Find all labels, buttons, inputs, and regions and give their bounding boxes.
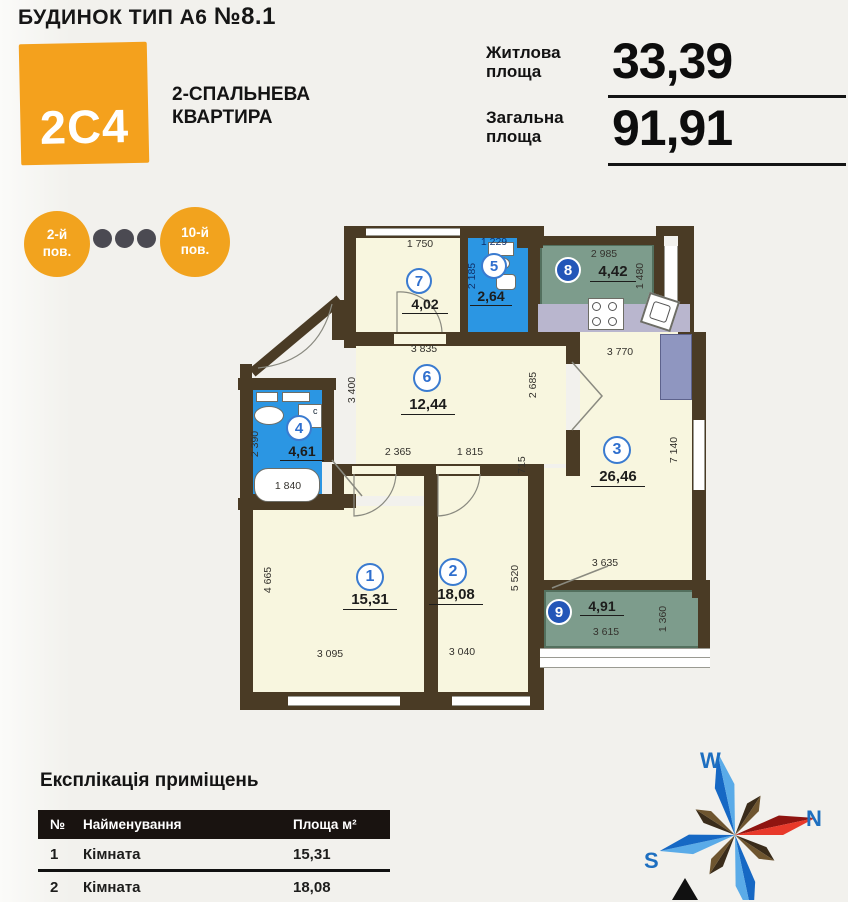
dim-r9-right: 1 360 bbox=[657, 597, 669, 641]
dim-r6-small: 715 bbox=[516, 448, 528, 482]
dim-r6-right: 2 685 bbox=[527, 363, 539, 407]
dim-r3-right: 7 140 bbox=[668, 428, 680, 472]
compass-label-n: N bbox=[806, 806, 822, 831]
room-1-area: 15,31 bbox=[343, 591, 397, 610]
compass-label-w: W bbox=[700, 748, 721, 773]
room-4-area: 4,61 bbox=[280, 443, 324, 461]
dim-r8-top: 2 985 bbox=[574, 248, 634, 260]
room-8-area: 4,42 bbox=[590, 263, 636, 282]
dim-r6-left: 3 400 bbox=[346, 368, 358, 412]
dim-r3-top: 3 770 bbox=[590, 346, 650, 358]
dim-r6-bottom-left: 2 365 bbox=[368, 446, 428, 458]
explication-table: № Найменування Площа м² 1 Кімната 15,31 … bbox=[38, 810, 390, 902]
arrow-fragment bbox=[672, 878, 698, 900]
dim-r2-right: 5 520 bbox=[509, 556, 521, 600]
room-4-number: 4 bbox=[286, 415, 312, 441]
cell-no: 2 bbox=[38, 879, 83, 896]
dim-r8-right: 1 480 bbox=[634, 254, 646, 298]
room-9-area: 4,91 bbox=[580, 598, 624, 616]
compass-rose: W N S bbox=[640, 740, 830, 900]
cell-name: Кімната bbox=[83, 846, 268, 863]
room-3-area: 26,46 bbox=[591, 468, 645, 487]
cell-name: Кімната bbox=[83, 879, 268, 896]
room-9-number: 9 bbox=[546, 599, 572, 625]
room-7-number: 7 bbox=[406, 268, 432, 294]
room-7-area: 4,02 bbox=[402, 296, 448, 314]
cell-area: 18,08 bbox=[268, 879, 390, 896]
col-header-area: Площа м² bbox=[268, 817, 390, 832]
dim-r5-left: 2 185 bbox=[466, 254, 478, 298]
dim-r1-left: 4 665 bbox=[262, 558, 274, 602]
compass-label-s: S bbox=[644, 848, 659, 873]
cell-area: 15,31 bbox=[268, 846, 390, 863]
table-row: 1 Кімната 15,31 bbox=[38, 839, 390, 869]
cell-no: 1 bbox=[38, 846, 83, 863]
dim-r9-bottom: 3 615 bbox=[576, 626, 636, 638]
dim-r4-left: 2 390 bbox=[249, 422, 261, 466]
room-2-number: 2 bbox=[439, 558, 467, 586]
room-2-area: 18,08 bbox=[429, 586, 483, 605]
explication-title: Експлікація приміщень bbox=[40, 770, 259, 792]
dim-r9-top: 3 635 bbox=[575, 557, 635, 569]
room-8-number: 8 bbox=[555, 257, 581, 283]
dim-r1-bottom: 3 095 bbox=[300, 648, 360, 660]
room-3-number: 3 bbox=[603, 436, 631, 464]
table-row: 2 Кімната 18,08 bbox=[38, 872, 390, 902]
col-header-name: Найменування bbox=[83, 817, 268, 832]
dim-r2-bottom: 3 040 bbox=[432, 646, 492, 658]
room-6-number: 6 bbox=[413, 364, 441, 392]
room-6-area: 12,44 bbox=[401, 396, 455, 415]
dim-r6-top: 3 835 bbox=[394, 343, 454, 355]
room-5-number: 5 bbox=[481, 253, 507, 279]
dim-r5-top: 1 229 bbox=[468, 236, 520, 248]
room-1-number: 1 bbox=[356, 563, 384, 591]
dim-r6-bottom-right: 1 815 bbox=[440, 446, 500, 458]
explication-header-row: № Найменування Площа м² bbox=[38, 810, 390, 839]
col-header-no: № bbox=[38, 817, 83, 832]
dim-r7-top: 1 750 bbox=[390, 238, 450, 250]
